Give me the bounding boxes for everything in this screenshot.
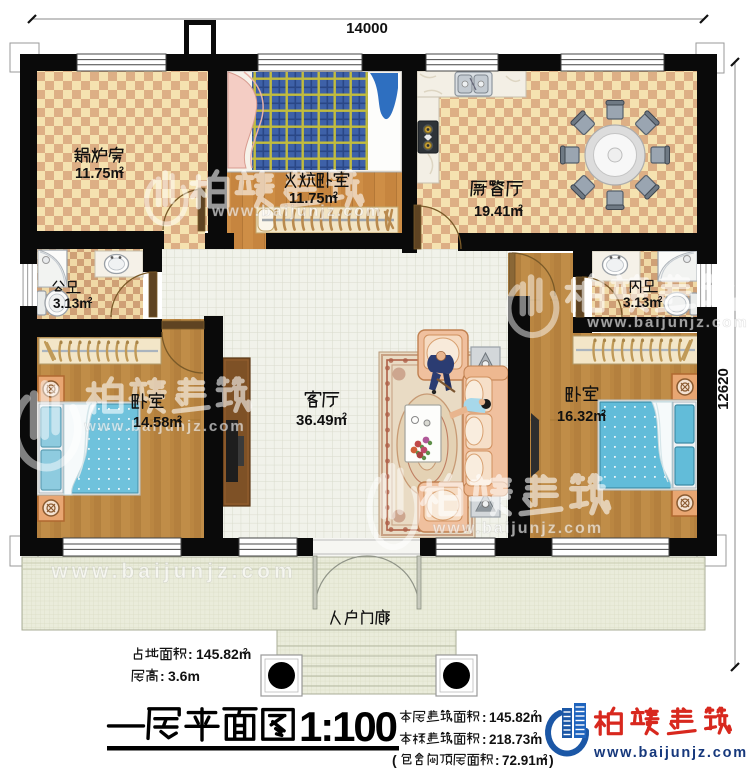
svg-text:): ): [549, 752, 554, 768]
svg-text:3.6m: 3.6m: [168, 668, 200, 684]
svg-text:3.13m: 3.13m: [53, 296, 91, 311]
svg-text:36.49m: 36.49m: [296, 412, 347, 429]
svg-text:2: 2: [543, 753, 548, 762]
svg-text:14.58m: 14.58m: [133, 415, 182, 431]
svg-text:2: 2: [88, 296, 93, 305]
svg-text:www.baijunjz.com: www.baijunjz.com: [593, 745, 748, 761]
svg-text:2: 2: [333, 190, 338, 200]
svg-text:3.13m: 3.13m: [623, 295, 661, 310]
svg-text:11.75m: 11.75m: [75, 166, 123, 182]
svg-text:72.91m: 72.91m: [502, 753, 548, 768]
svg-text::: :: [188, 646, 193, 662]
svg-text:2: 2: [177, 414, 182, 424]
svg-text:2: 2: [533, 709, 538, 718]
svg-text:www.baijunjz.com: www.baijunjz.com: [50, 560, 296, 583]
svg-text:2: 2: [601, 408, 606, 418]
svg-text:16.32m: 16.32m: [557, 409, 606, 425]
svg-text:(: (: [392, 752, 397, 768]
svg-text:www.baijunjz.com: www.baijunjz.com: [586, 314, 748, 331]
svg-text:2: 2: [342, 411, 347, 421]
svg-text::: :: [482, 710, 487, 725]
svg-text:14000: 14000: [346, 20, 388, 37]
svg-text:11.75m: 11.75m: [289, 191, 337, 207]
svg-text:12620: 12620: [715, 368, 732, 410]
svg-text:2: 2: [119, 165, 124, 175]
svg-text::: :: [160, 668, 165, 684]
svg-text:2: 2: [518, 203, 523, 213]
svg-text:2: 2: [533, 731, 538, 740]
svg-text::: :: [495, 753, 500, 768]
svg-text:2: 2: [243, 646, 248, 656]
svg-text::: :: [482, 732, 487, 747]
svg-text:www.baijunjz.com: www.baijunjz.com: [432, 520, 603, 537]
svg-text:19.41m: 19.41m: [474, 204, 523, 220]
svg-text:1:100: 1:100: [299, 703, 398, 750]
svg-text:2: 2: [658, 295, 663, 304]
